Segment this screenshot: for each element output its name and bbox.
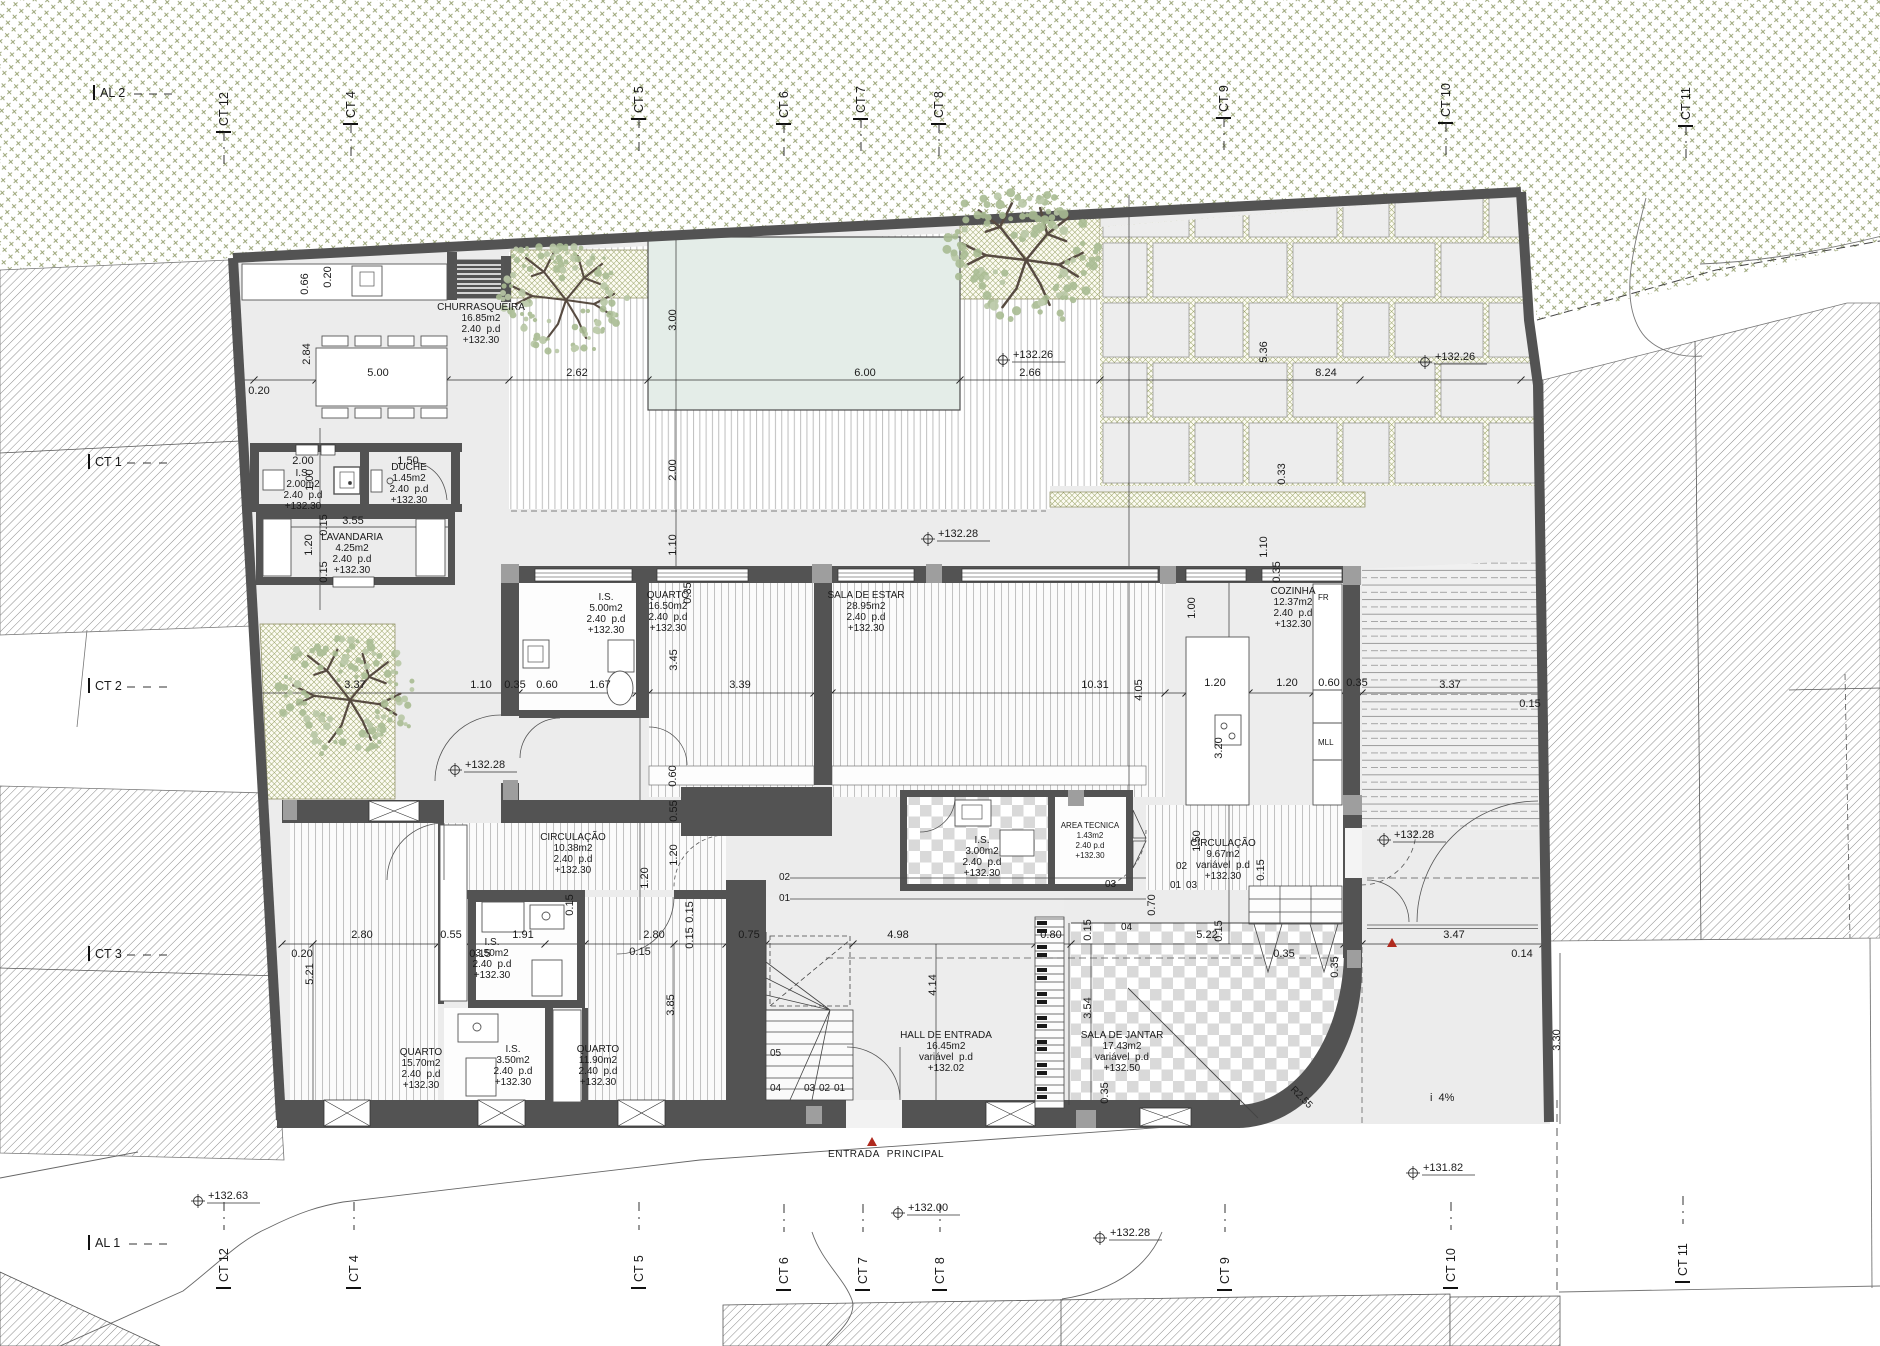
svg-text:FR: FR	[1318, 593, 1329, 602]
svg-text:02: 02	[779, 872, 791, 883]
svg-text:0.60: 0.60	[667, 765, 679, 786]
svg-text:5.21: 5.21	[304, 963, 316, 984]
svg-text:2.00: 2.00	[667, 459, 679, 480]
svg-text:3.45: 3.45	[668, 649, 680, 670]
svg-text:1.20: 1.20	[639, 867, 651, 888]
svg-text:1.10: 1.10	[470, 679, 491, 691]
svg-text:COZINHA12.37m22.40 p.d+132.30: COZINHA12.37m22.40 p.d+132.30	[1271, 586, 1316, 630]
svg-text:2.00: 2.00	[292, 455, 313, 467]
svg-text:0.33: 0.33	[1276, 463, 1288, 484]
svg-text:CT 10: CT 10	[1439, 83, 1453, 117]
svg-text:03: 03	[1186, 880, 1198, 891]
svg-text:5.00: 5.00	[367, 367, 388, 379]
svg-text:+132.28: +132.28	[1110, 1227, 1150, 1239]
svg-text:+132.26: +132.26	[1013, 349, 1053, 361]
svg-text:0.80: 0.80	[1040, 929, 1061, 941]
svg-text:0.75: 0.75	[738, 929, 759, 941]
svg-text:AL 1: AL 1	[95, 1236, 120, 1250]
svg-text:CT 9: CT 9	[1218, 1257, 1232, 1284]
svg-text:0.15: 0.15	[318, 561, 330, 582]
svg-text:+131.82: +131.82	[1423, 1162, 1463, 1174]
svg-text:+132.28: +132.28	[465, 759, 505, 771]
svg-text:0.20: 0.20	[248, 385, 269, 397]
svg-text:1.20: 1.20	[1276, 677, 1297, 689]
svg-text:3.39: 3.39	[729, 679, 750, 691]
svg-text:0.15: 0.15	[629, 946, 650, 958]
svg-text:CT 6: CT 6	[777, 1257, 791, 1284]
svg-text:3.30: 3.30	[1551, 1029, 1563, 1050]
svg-text:0.20: 0.20	[291, 948, 312, 960]
svg-text:3.55: 3.55	[342, 515, 363, 527]
svg-text:01: 01	[834, 1083, 846, 1094]
svg-text:0.35: 0.35	[504, 679, 525, 691]
svg-text:CT 7: CT 7	[856, 1257, 870, 1284]
svg-text:1.50: 1.50	[1191, 830, 1203, 851]
svg-text:0.15: 0.15	[1082, 919, 1094, 940]
svg-text:0.15: 0.15	[469, 948, 490, 960]
svg-text:0.15: 0.15	[1213, 920, 1225, 941]
svg-text:0.60: 0.60	[536, 679, 557, 691]
svg-text:0.35: 0.35	[1271, 561, 1283, 582]
svg-text:ENTRADA PRINCIPAL: ENTRADA PRINCIPAL	[828, 1149, 944, 1160]
svg-text:2.84: 2.84	[301, 343, 313, 364]
svg-text:3.37: 3.37	[1439, 679, 1460, 691]
svg-text:2.66: 2.66	[1019, 367, 1040, 379]
svg-text:10.31: 10.31	[1081, 679, 1109, 691]
svg-text:i 4%: i 4%	[1430, 1092, 1455, 1104]
svg-text:CT 5: CT 5	[632, 86, 646, 113]
svg-text:CT 10: CT 10	[1444, 1248, 1458, 1282]
svg-text:+132.63: +132.63	[208, 1190, 248, 1202]
svg-text:4.05: 4.05	[1133, 679, 1145, 700]
svg-text:03: 03	[804, 1083, 816, 1094]
svg-text:CT 11: CT 11	[1676, 1243, 1690, 1276]
svg-text:0.66: 0.66	[299, 273, 311, 294]
svg-text:0.55: 0.55	[440, 929, 461, 941]
svg-text:1.00: 1.00	[1186, 597, 1198, 618]
svg-text:2.62: 2.62	[566, 367, 587, 379]
svg-text:3.20: 3.20	[1213, 737, 1225, 758]
svg-text:+132.28: +132.28	[938, 528, 978, 540]
svg-text:0.70: 0.70	[1146, 894, 1158, 915]
svg-text:CT 3: CT 3	[95, 947, 122, 961]
svg-text:0.15: 0.15	[1255, 859, 1267, 880]
svg-text:CT 6: CT 6	[777, 91, 791, 118]
svg-text:0.55: 0.55	[668, 800, 680, 821]
svg-text:1.50: 1.50	[397, 455, 418, 467]
svg-text:CT 4: CT 4	[347, 1255, 361, 1282]
svg-text:3.85: 3.85	[665, 994, 677, 1015]
svg-text:1.20: 1.20	[303, 534, 315, 555]
svg-text:0.35: 0.35	[1273, 948, 1294, 960]
svg-text:0.15: 0.15	[564, 894, 576, 915]
svg-text:QUARTO15.70m22.40 p.d+132.30: QUARTO15.70m22.40 p.d+132.30	[400, 1047, 443, 1091]
svg-text:CT 11: CT 11	[1679, 87, 1693, 120]
svg-text:0.60: 0.60	[1318, 677, 1339, 689]
svg-text:CT 7: CT 7	[854, 86, 868, 113]
svg-text:CT 5: CT 5	[632, 1255, 646, 1282]
svg-text:02: 02	[1176, 861, 1188, 872]
svg-text:04: 04	[1121, 922, 1133, 933]
svg-text:+132.28: +132.28	[1394, 829, 1434, 841]
svg-text:0.15: 0.15	[684, 927, 696, 948]
svg-text:CT 4: CT 4	[344, 91, 358, 118]
svg-text:1.67: 1.67	[589, 679, 610, 691]
svg-text:8.24: 8.24	[1315, 367, 1336, 379]
svg-text:0.20: 0.20	[322, 266, 334, 287]
svg-text:2.80: 2.80	[643, 929, 664, 941]
svg-text:3.00: 3.00	[667, 309, 679, 330]
svg-text:04: 04	[770, 1083, 782, 1094]
svg-text:QUARTO11.90m22.40 p.d+132.30: QUARTO11.90m22.40 p.d+132.30	[577, 1044, 620, 1088]
svg-text:CT 2: CT 2	[95, 679, 122, 693]
svg-text:02: 02	[819, 1083, 831, 1094]
svg-text:03: 03	[1105, 879, 1117, 890]
svg-text:2.80: 2.80	[351, 929, 372, 941]
svg-text:MLL: MLL	[1318, 738, 1334, 747]
svg-text:CT 12: CT 12	[217, 92, 231, 126]
svg-text:0.15: 0.15	[318, 514, 330, 535]
svg-text:0.35: 0.35	[682, 582, 694, 603]
svg-text:CT 8: CT 8	[932, 91, 946, 118]
svg-text:5.36: 5.36	[1258, 341, 1270, 362]
svg-text:0.35: 0.35	[1346, 677, 1367, 689]
svg-text:0.35: 0.35	[1329, 956, 1341, 977]
svg-text:CT 9: CT 9	[1217, 85, 1231, 112]
svg-text:DUCHE1.45m22.40 p.d+132.30: DUCHE1.45m22.40 p.d+132.30	[390, 462, 429, 506]
svg-text:05: 05	[770, 1048, 782, 1059]
svg-text:6.00: 6.00	[854, 367, 875, 379]
svg-text:1.10: 1.10	[667, 534, 679, 555]
svg-text:0.14: 0.14	[1511, 948, 1532, 960]
svg-text:4.14: 4.14	[927, 974, 939, 995]
svg-text:01: 01	[1170, 880, 1182, 891]
svg-text:1.91: 1.91	[512, 929, 533, 941]
svg-text:3.54: 3.54	[1082, 997, 1094, 1018]
svg-text:1.20: 1.20	[1204, 677, 1225, 689]
svg-text:0.15: 0.15	[1519, 698, 1540, 710]
svg-text:+132.26: +132.26	[1435, 351, 1475, 363]
svg-text:CT 8: CT 8	[933, 1257, 947, 1284]
svg-text:0.15: 0.15	[684, 901, 696, 922]
svg-text:01: 01	[779, 893, 791, 904]
svg-text:0.35: 0.35	[1099, 1082, 1111, 1103]
svg-text:4.98: 4.98	[887, 929, 908, 941]
svg-text:3.37: 3.37	[344, 679, 365, 691]
svg-text:1.10: 1.10	[1258, 536, 1270, 557]
svg-text:CT 1: CT 1	[95, 455, 122, 469]
svg-text:CT 12: CT 12	[217, 1248, 231, 1282]
svg-text:+132.00: +132.00	[908, 1202, 948, 1214]
svg-text:3.47: 3.47	[1443, 929, 1464, 941]
svg-text:1.20: 1.20	[668, 844, 680, 865]
svg-text:AL 2: AL 2	[100, 86, 125, 100]
svg-text:1.00: 1.00	[304, 469, 316, 490]
